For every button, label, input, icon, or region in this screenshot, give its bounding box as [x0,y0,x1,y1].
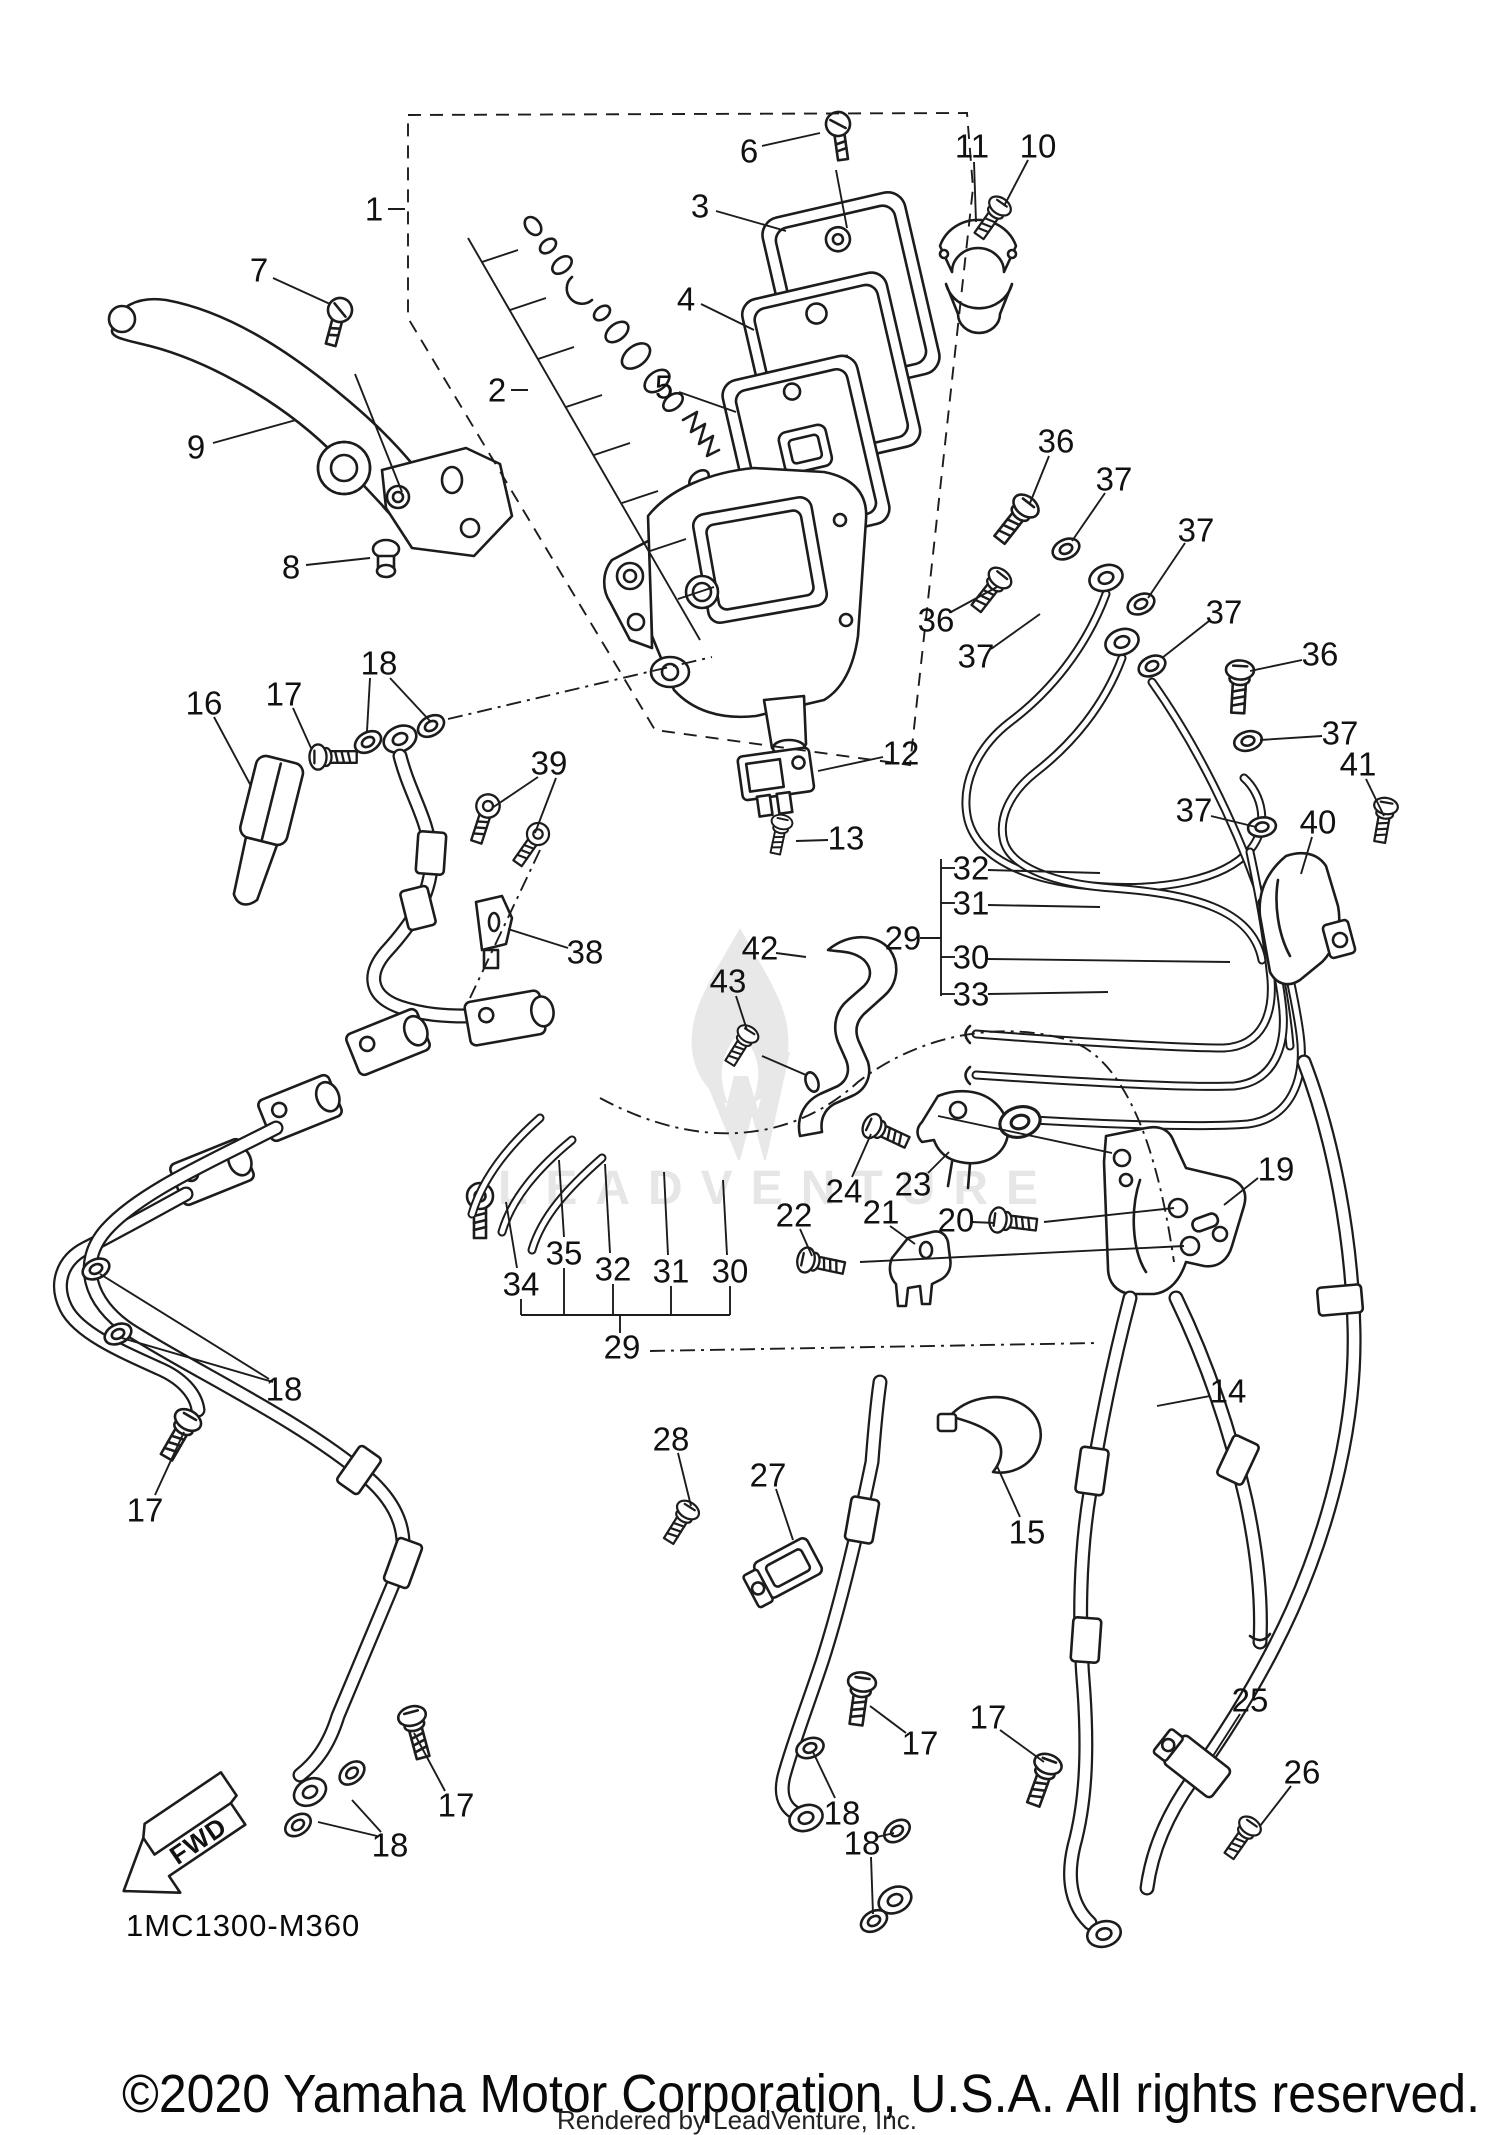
callout-36: 36 [1038,423,1075,460]
leader-line [293,708,311,748]
leader-line [492,777,538,808]
callout-22: 22 [776,1197,813,1234]
pan-screw [465,791,503,845]
callout-3: 3 [691,188,709,225]
flange-bolt [659,1497,703,1547]
callout-34: 34 [503,1266,540,1303]
callout-13: 13 [828,820,865,857]
leader-line [318,1822,377,1836]
callout-43: 43 [710,963,747,1000]
callout-18: 18 [266,1371,303,1408]
callout-31: 31 [653,1253,690,1290]
callout-1: 1 [365,191,383,228]
callout-17: 17 [266,676,303,713]
callout-35: 35 [546,1235,583,1272]
leader-line [988,905,1100,907]
switch-screw [765,813,794,856]
washer [1232,728,1264,754]
piston-kit-tick [622,491,658,503]
clip-bracket [890,1231,951,1306]
flange-bolt [1368,796,1399,844]
banjo-eye [1102,624,1143,659]
callout-18: 18 [361,645,398,682]
union-bolt [396,1703,437,1761]
flange-bolt [795,1246,846,1280]
callout-30: 30 [953,939,990,976]
callout-29: 29 [885,920,922,957]
handlebar-clamp-group [940,193,1016,333]
washer [1247,815,1278,839]
callout-23: 23 [895,1166,932,1203]
callout-19: 19 [1258,1151,1295,1188]
brake-lever-group [109,295,512,577]
lever-adjust-screw [319,295,355,348]
flange-bolt [859,1111,912,1154]
fwd-arrow: FWD [99,1772,264,1918]
leader-line [1250,660,1302,671]
callout-4: 4 [677,281,695,318]
lever-pivot-nut [373,540,399,577]
callout-32: 32 [953,850,990,887]
leader-line [1030,456,1049,503]
leader-line [997,1466,1020,1517]
callout-10: 10 [1020,128,1057,165]
exploded-parts-diagram: LEADVENTURE [0,0,1500,2135]
union-bolt [842,1671,877,1727]
leader-line [214,717,251,786]
callout-12: 12 [883,735,920,772]
leader-line [818,757,883,771]
washer [1124,589,1157,618]
washer [1049,534,1082,563]
master-cylinder-body-group [604,468,866,756]
callout-31: 31 [953,885,990,922]
leadventure-v-mark [694,1052,790,1160]
hose-guide-strap [799,937,896,1136]
callout-7: 7 [250,252,268,289]
washer [281,1809,315,1841]
stay-bolt [309,744,356,769]
parts-diagram-page: LEADVENTURE [0,0,1500,2135]
callout-25: 25 [1232,1682,1269,1719]
leader-line [776,1489,793,1540]
leader-line [367,678,370,731]
callout-39: 39 [531,745,568,782]
pan-screw [508,819,553,870]
piston-kit-tick [538,347,574,359]
leader-line [871,1857,873,1914]
leader-line [1000,1730,1044,1762]
callout-6: 6 [740,133,758,170]
leader-line [650,1343,1098,1351]
hose-bracket [476,896,512,968]
callout-40: 40 [1300,804,1337,841]
callout-37: 37 [1206,594,1243,631]
callout-30: 30 [712,1253,749,1290]
leader-line [991,614,1040,649]
callout-17: 17 [902,1725,939,1762]
flange-bolt [1219,1813,1264,1863]
callout-33: 33 [953,976,990,1013]
hose-clamp-bracket [740,1536,825,1608]
rendered-by-text: Rendered by LeadVenture, Inc. [557,2105,917,2135]
callout-11: 11 [955,128,989,165]
callout-21: 21 [863,1194,900,1231]
leader-line [762,133,820,146]
callout-14: 14 [1210,1373,1247,1410]
hose-band-clamp [938,1397,1041,1472]
leader-line [414,1733,445,1791]
leader-line [390,678,430,721]
callout-42: 42 [742,930,779,967]
union-bolt [154,1405,204,1464]
callout-5: 5 [655,369,673,406]
brake-switch-group [737,747,817,856]
callout-41: 41 [1340,746,1377,783]
hose-stay-bracket [1104,1127,1245,1294]
piston-kit-list-line [468,238,700,640]
leader-line [870,1706,906,1733]
reservoir-cover-screw [824,110,854,161]
leader-line [678,1453,691,1506]
leader-line [213,420,296,443]
callout-27: 27 [750,1457,787,1494]
piston-kit-tick [510,298,546,310]
callout-37: 37 [1096,461,1133,498]
part-code: 1MC1300-M360 [126,1908,360,1943]
reservoir-stay [222,754,305,911]
washer [880,1815,914,1847]
leader-line [1162,621,1209,658]
callout-15: 15 [1009,1514,1046,1551]
callout-26: 26 [1284,1754,1321,1791]
callout-38: 38 [567,934,604,971]
callout-9: 9 [187,429,205,466]
union-bolt [1224,660,1255,714]
leader-line [776,953,806,957]
leader-line [1148,543,1185,598]
leader-line [813,1752,835,1798]
callout-20: 20 [938,1202,975,1239]
callout-32: 32 [595,1251,632,1288]
leader-line [1260,736,1322,740]
callout-36: 36 [1302,636,1339,673]
leader-line [508,929,568,948]
leader-line [306,558,370,565]
callout-8: 8 [282,549,300,586]
callout-37: 37 [1178,512,1215,549]
callout-2: 2 [488,372,506,409]
callout-18: 18 [844,1825,881,1862]
washer [414,711,448,741]
pipe-holder-bracket [1260,853,1356,984]
callout-37: 37 [1176,792,1213,829]
leader-line [273,278,330,304]
hose-joint-block [464,988,557,1046]
callout-18: 18 [372,1827,409,1864]
banjo-eye [1086,560,1127,595]
callout-29: 29 [604,1329,641,1366]
leader-line [1004,160,1028,206]
leader-line [1157,1396,1210,1406]
callout-36: 36 [918,602,955,639]
union-bolt [988,490,1042,549]
leader-line [972,1222,995,1223]
callout-37: 37 [958,638,995,675]
piston-kit-tick [594,443,630,455]
leader-line [1072,493,1105,541]
piston-kit-tick [566,395,602,407]
callout-24: 24 [826,1173,863,1210]
callout-17: 17 [970,1699,1007,1736]
washer [335,1757,369,1790]
leader-line [988,959,1230,962]
leader-line [988,992,1108,994]
callout-17: 17 [438,1787,475,1824]
union-bolt [1020,1750,1064,1809]
callout-16: 16 [186,685,223,722]
piston-kit-tick [482,250,518,262]
leader-line [974,162,976,222]
leader-line [1260,1786,1291,1826]
callout-28: 28 [653,1421,690,1458]
leader-line [796,840,828,841]
callout-17: 17 [127,1492,164,1529]
